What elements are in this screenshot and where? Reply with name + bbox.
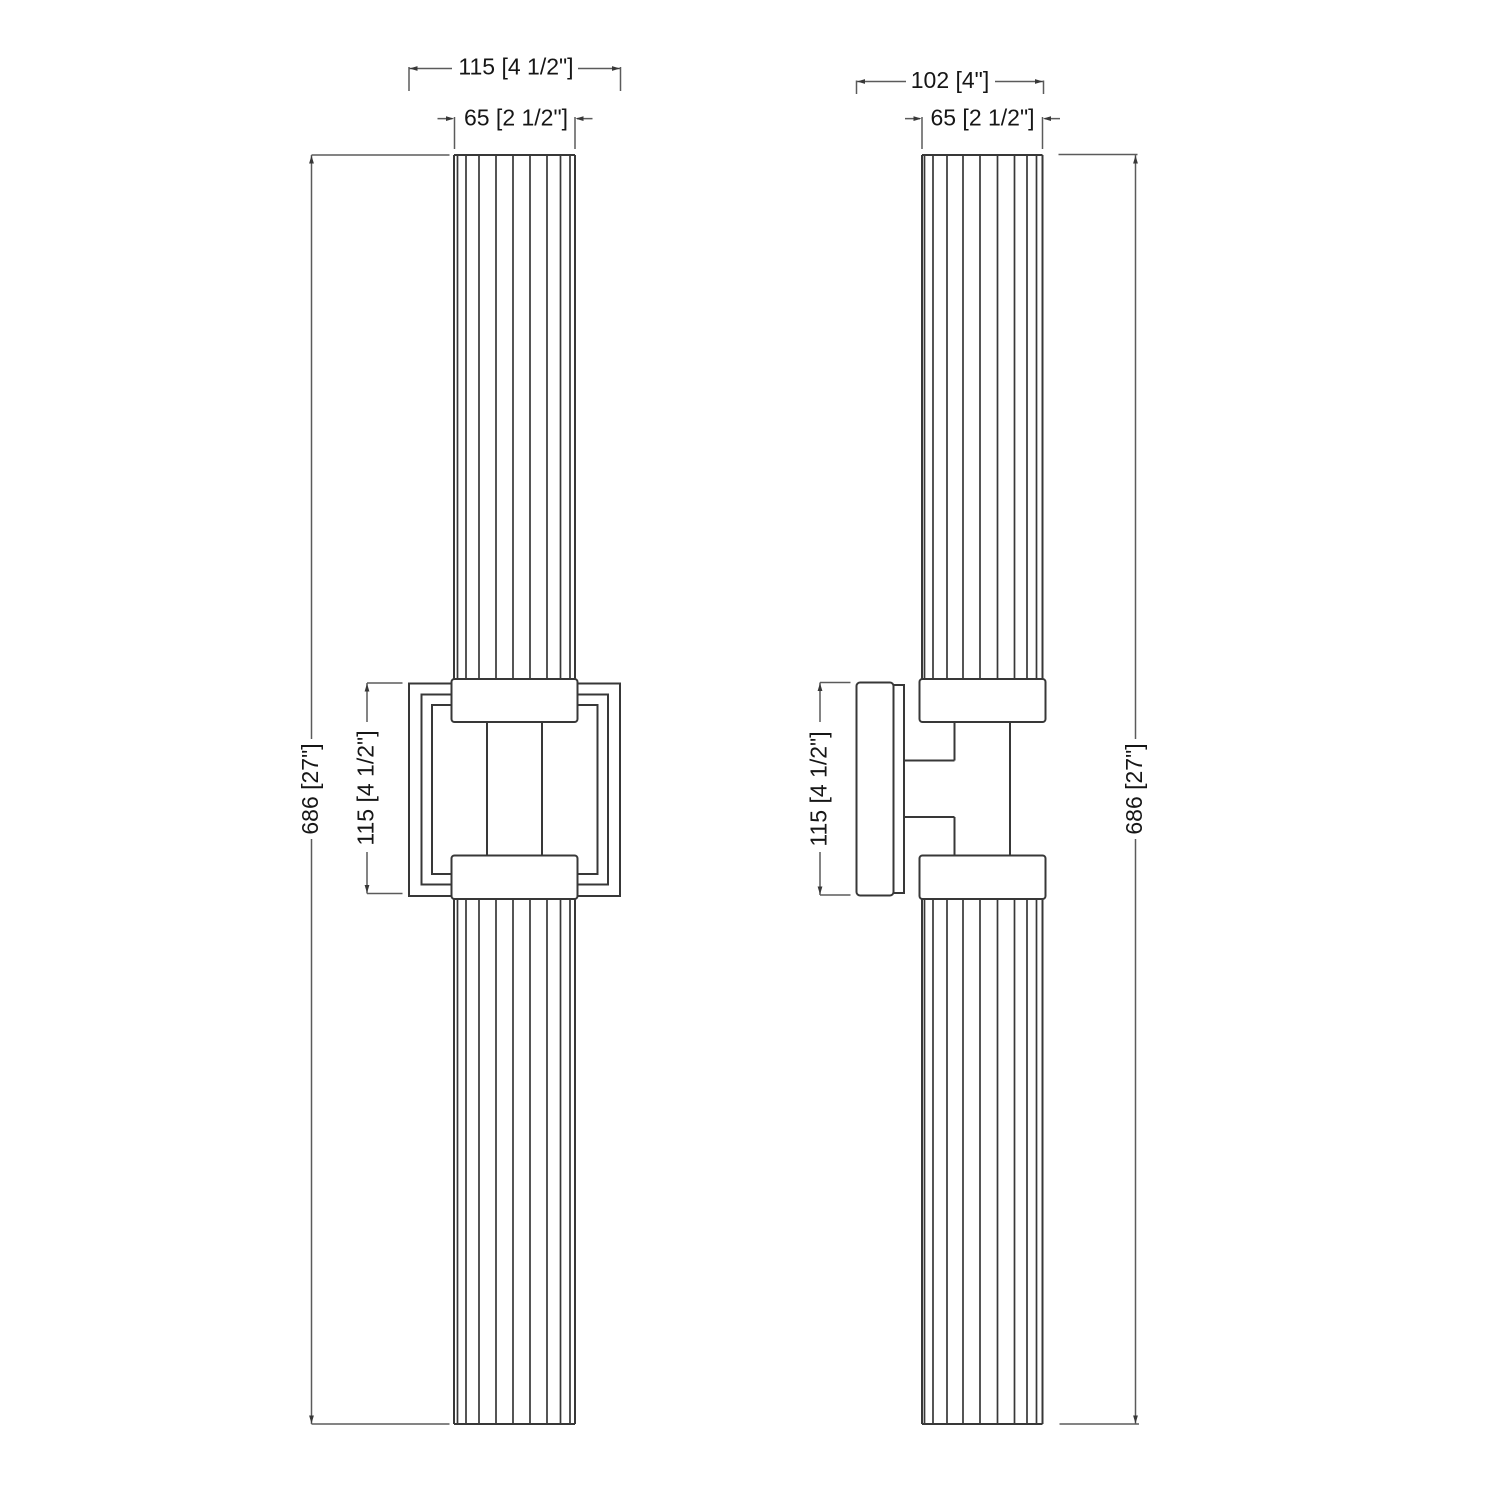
- svg-text:115 [4 1/2"]: 115 [4 1/2"]: [458, 54, 573, 80]
- svg-text:686 [27"]: 686 [27"]: [297, 743, 323, 834]
- svg-text:65 [2 1/2"]: 65 [2 1/2"]: [930, 105, 1034, 131]
- svg-text:102 [4"]: 102 [4"]: [911, 67, 990, 93]
- svg-text:65 [2 1/2"]: 65 [2 1/2"]: [464, 105, 568, 131]
- svg-text:115 [4 1/2"]: 115 [4 1/2"]: [353, 730, 379, 845]
- svg-text:686 [27"]: 686 [27"]: [1121, 743, 1147, 834]
- svg-text:115 [4 1/2"]: 115 [4 1/2"]: [806, 731, 832, 846]
